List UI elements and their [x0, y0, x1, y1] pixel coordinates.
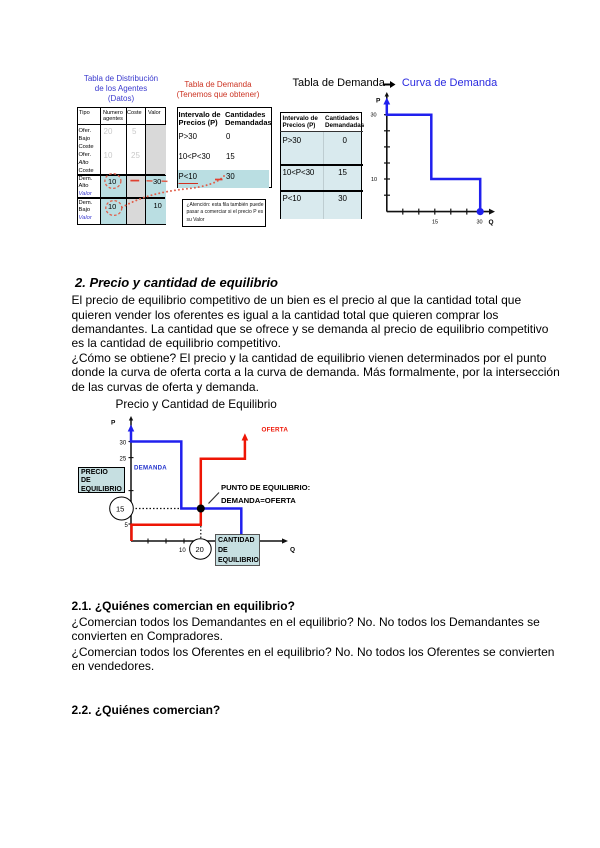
- svg-text:15: 15: [116, 505, 124, 514]
- svg-text:5: 5: [125, 523, 129, 529]
- svg-text:P: P: [111, 420, 116, 427]
- svg-text:20: 20: [196, 545, 204, 554]
- svg-text:OFERTA: OFERTA: [262, 427, 289, 434]
- svg-text:DEMANDA: DEMANDA: [134, 465, 167, 472]
- svg-text:25: 25: [120, 456, 127, 462]
- svg-text:Q: Q: [290, 547, 295, 554]
- svg-text:30: 30: [120, 440, 127, 446]
- svg-text:10: 10: [179, 548, 186, 554]
